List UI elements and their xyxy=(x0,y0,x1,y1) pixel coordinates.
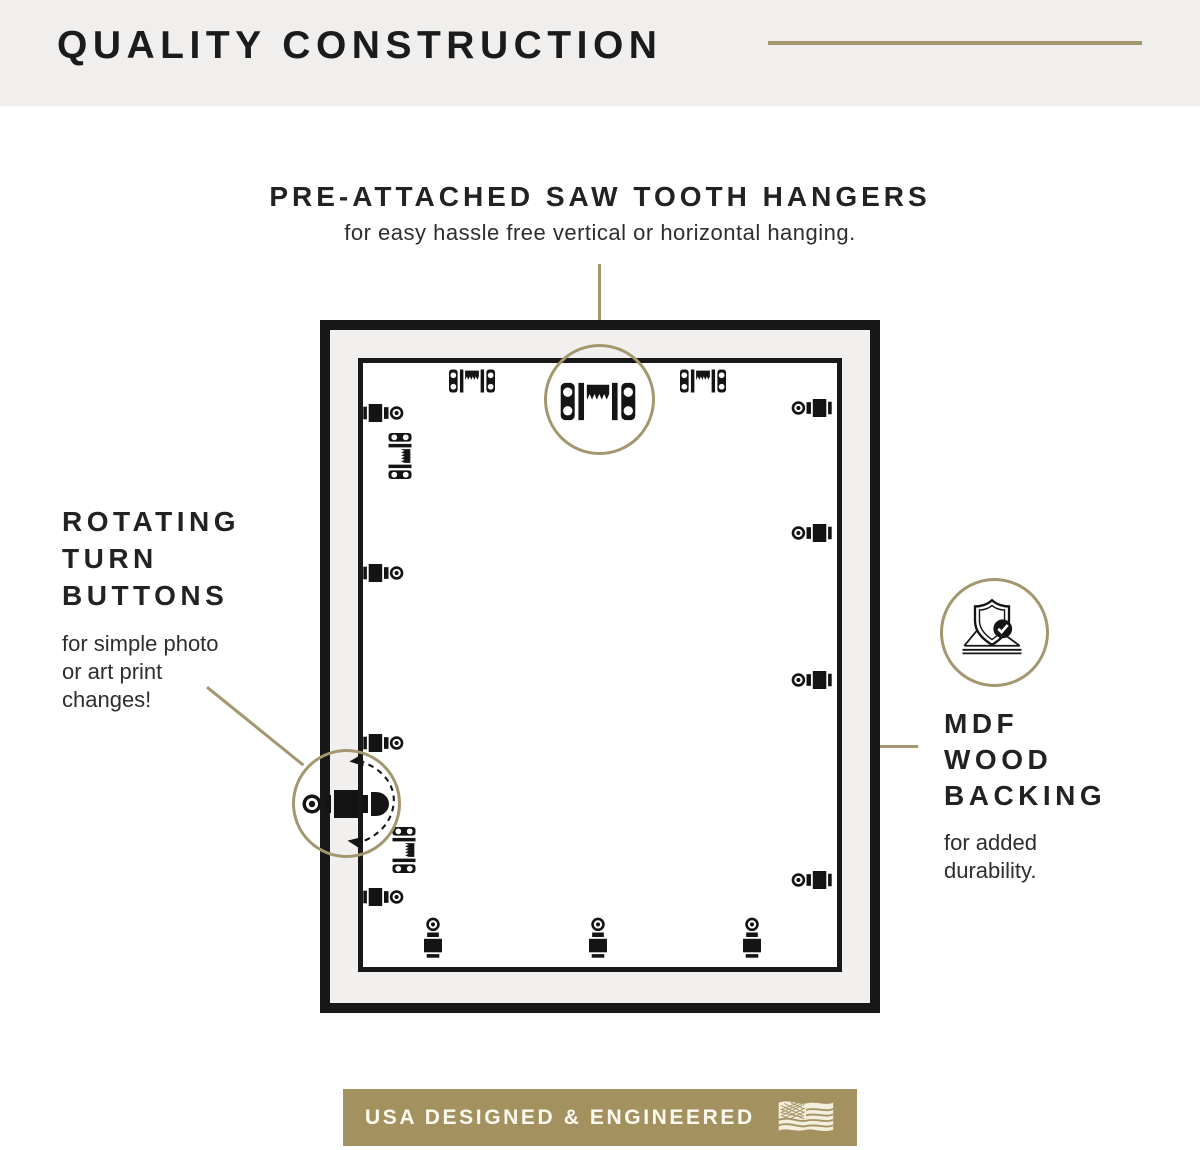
usa-banner: USA DESIGNED & ENGINEERED xyxy=(343,1089,857,1146)
turn-button-icon xyxy=(424,916,442,958)
shield-check-icon xyxy=(958,595,1026,659)
sawtooth-hanger-icon xyxy=(387,433,413,479)
turn-button-icon xyxy=(790,524,832,542)
sawtooth-hanger-icon xyxy=(680,368,726,394)
callout-turn-title-line: BUTTONS xyxy=(62,577,262,614)
turn-button-icon xyxy=(589,916,607,958)
usa-banner-label: USA DESIGNED & ENGINEERED xyxy=(365,1106,755,1130)
callout-mdf-backing: MDF WOOD BACKING for added durability. xyxy=(944,706,1164,885)
sawtooth-hanger-icon xyxy=(449,368,495,394)
header-rule xyxy=(768,41,1142,45)
callout-sawtooth-subtitle: for easy hassle free vertical or horizon… xyxy=(0,220,1200,246)
turn-button-icon xyxy=(790,399,832,417)
rotation-arrows-icon xyxy=(340,750,406,854)
turn-button-icon xyxy=(743,916,761,958)
callout-sawtooth-hangers: PRE-ATTACHED SAW TOOTH HANGERS for easy … xyxy=(0,181,1200,246)
callout-turn-subtitle: for simple photo or art print changes! xyxy=(62,630,244,714)
callout-turn-title-line: TURN xyxy=(62,540,262,577)
callout-mdf-title-line: MDF xyxy=(944,706,1164,742)
callout-sawtooth-title: PRE-ATTACHED SAW TOOTH HANGERS xyxy=(0,181,1200,213)
turn-button-icon xyxy=(363,888,405,906)
page-title: QUALITY CONSTRUCTION xyxy=(57,24,662,68)
callout-turn-buttons: ROTATING TURN BUTTONS for simple photo o… xyxy=(62,503,262,714)
callout-mdf-title-line: BACKING xyxy=(944,778,1164,814)
usa-flag-icon xyxy=(777,1098,835,1138)
turn-button-icon xyxy=(790,671,832,689)
magnifier-circle-sawtooth xyxy=(544,344,655,455)
callout-mdf-subtitle: for added durability. xyxy=(944,829,1094,885)
turn-button-icon xyxy=(363,404,405,422)
turn-button-icon xyxy=(363,564,405,582)
callout-mdf-title-line: WOOD xyxy=(944,742,1164,778)
turn-button-icon xyxy=(790,871,832,889)
callout-turn-title-line: ROTATING xyxy=(62,503,262,540)
